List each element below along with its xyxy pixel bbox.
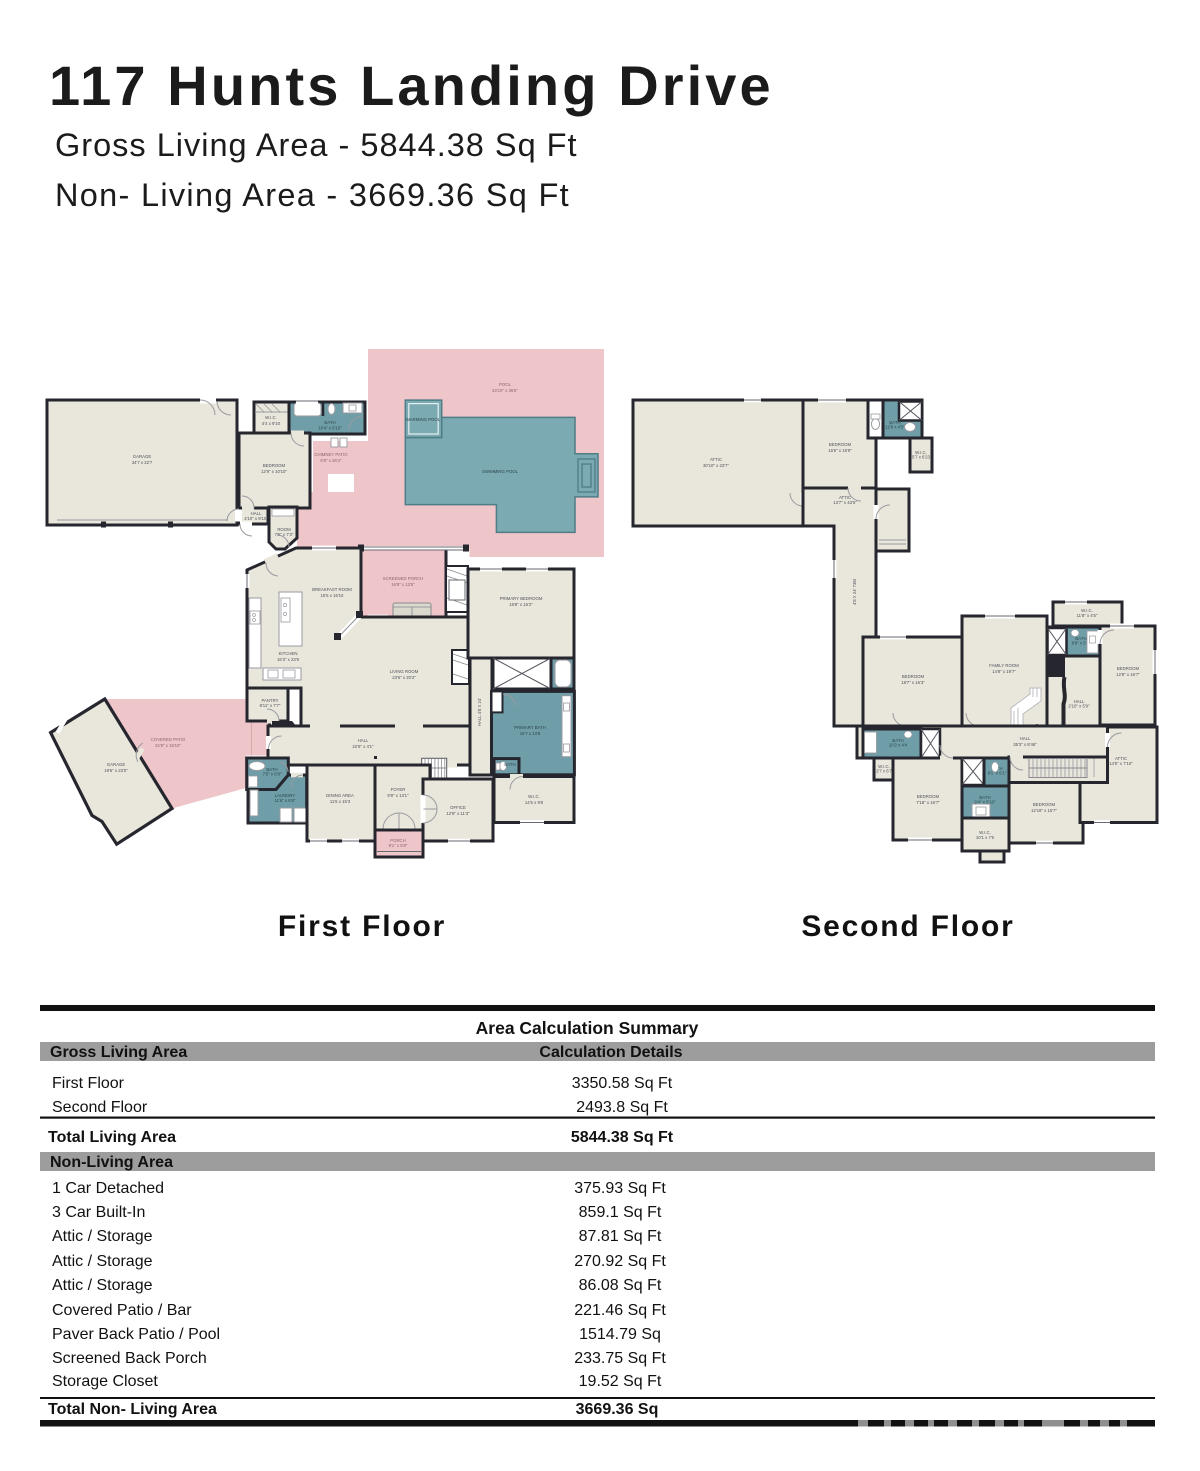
- svg-text:Area Calculation Summary: Area Calculation Summary: [476, 1018, 699, 1038]
- svg-text:270.92 Sq Ft: 270.92 Sq Ft: [574, 1253, 666, 1270]
- svg-text:Attic / Storage: Attic / Storage: [52, 1253, 153, 1270]
- svg-text:BEDROOM12'18" x 15'7": BEDROOM12'18" x 15'7": [1031, 802, 1057, 813]
- svg-text:GARAGE19'6" x 23'0": GARAGE19'6" x 23'0": [104, 762, 128, 773]
- svg-text:86.08 Sq Ft: 86.08 Sq Ft: [579, 1277, 662, 1294]
- svg-text:First Floor: First Floor: [52, 1075, 125, 1092]
- svg-text:FAMILY ROOM14'8" x 19'7": FAMILY ROOM14'8" x 19'7": [989, 663, 1019, 674]
- svg-text:Second Floor: Second Floor: [52, 1099, 148, 1116]
- svg-text:859.1 Sq Ft: 859.1 Sq Ft: [579, 1204, 662, 1221]
- svg-text:Screened Back Porch: Screened Back Porch: [52, 1350, 207, 1367]
- svg-text:WARMING POOL: WARMING POOL: [406, 417, 441, 422]
- svg-text:BEDROOM12'8" x 16'7": BEDROOM12'8" x 16'7": [1116, 666, 1140, 677]
- svg-text:GARAGE34'7 x 22'7: GARAGE34'7 x 22'7: [132, 454, 153, 465]
- svg-text:375.93 Sq Ft: 375.93 Sq Ft: [574, 1180, 666, 1197]
- svg-text:BEDROOM18'7" x 16'3": BEDROOM18'7" x 16'3": [901, 674, 925, 685]
- svg-text:87.81 Sq Ft: 87.81 Sq Ft: [579, 1228, 662, 1245]
- svg-text:2493.8 Sq Ft: 2493.8 Sq Ft: [576, 1099, 668, 1116]
- svg-text:Non-Living Area: Non-Living Area: [50, 1154, 173, 1171]
- svg-text:Attic / Storage: Attic / Storage: [52, 1277, 153, 1294]
- svg-text:BEDROOM12'9" x 10'10": BEDROOM12'9" x 10'10": [261, 463, 287, 474]
- svg-text:First Floor: First Floor: [278, 910, 446, 943]
- svg-text:Second Floor: Second Floor: [801, 910, 1014, 943]
- svg-text:Total Non- Living Area: Total Non- Living Area: [48, 1401, 217, 1418]
- svg-text:19.52 Sq Ft: 19.52 Sq Ft: [579, 1373, 662, 1390]
- svg-text:1514.79 Sq: 1514.79 Sq: [579, 1326, 661, 1343]
- svg-text:DINING AREA11'6 x 15'3: DINING AREA11'6 x 15'3: [326, 793, 354, 804]
- svg-text:Paver Back Patio / Pool: Paver Back Patio / Pool: [52, 1326, 220, 1343]
- svg-text:BEDROOM16'5" x 15'9": BEDROOM16'5" x 15'9": [828, 442, 852, 453]
- svg-text:221.46 Sq Ft: 221.46 Sq Ft: [574, 1302, 666, 1319]
- svg-text:117 Hunts Landing Drive: 117 Hunts Landing Drive: [49, 54, 774, 117]
- svg-text:5844.38 Sq Ft: 5844.38 Sq Ft: [571, 1129, 674, 1146]
- svg-text:BATH: BATH: [504, 762, 515, 767]
- svg-text:KITCHEN16'3" x 23'9: KITCHEN16'3" x 23'9: [277, 651, 300, 662]
- svg-text:3350.58 Sq Ft: 3350.58 Sq Ft: [572, 1075, 673, 1092]
- svg-text:Gross Living Area: Gross Living Area: [50, 1044, 187, 1061]
- svg-text:LAUNDRY11'6" x 6'8": LAUNDRY11'6" x 6'8": [275, 793, 296, 803]
- svg-text:BEDROOM7'18" x 16'7": BEDROOM7'18" x 16'7": [916, 794, 940, 805]
- svg-text:COVERED PATIO24'8" x 16'10": COVERED PATIO24'8" x 16'10": [151, 737, 186, 748]
- svg-text:PORCH8'1" x 5'8": PORCH8'1" x 5'8": [389, 838, 408, 848]
- svg-text:Gross Living Area - 5844.38 Sq: Gross Living Area - 5844.38 Sq Ft: [55, 127, 578, 163]
- svg-text:3669.36 Sq: 3669.36 Sq: [576, 1401, 659, 1418]
- svg-text:Attic / Storage: Attic / Storage: [52, 1228, 153, 1245]
- svg-text:Storage Closet: Storage Closet: [52, 1373, 158, 1390]
- svg-text:PANTRY8'11" x 7'7": PANTRY8'11" x 7'7": [260, 698, 281, 708]
- svg-text:233.75 Sq Ft: 233.75 Sq Ft: [574, 1350, 666, 1367]
- svg-text:Non- Living Area - 3669.36 Sq: Non- Living Area - 3669.36 Sq Ft: [55, 177, 570, 213]
- svg-text:1 Car Detached: 1 Car Detached: [52, 1180, 164, 1197]
- svg-text:4'8 X 24' 73M: 4'8 X 24' 73M: [852, 579, 857, 605]
- svg-text:Calculation Details: Calculation Details: [539, 1044, 682, 1061]
- svg-text:SWIMMING POOL: SWIMMING POOL: [482, 469, 519, 474]
- svg-text:LIVING ROOM23'6" x 20'2": LIVING ROOM23'6" x 20'2": [390, 669, 419, 680]
- svg-text:Total Living Area: Total Living Area: [48, 1129, 176, 1146]
- svg-text:3 Car Built-In: 3 Car Built-In: [52, 1204, 145, 1221]
- svg-text:HALL 4'8 X 24': HALL 4'8 X 24': [477, 698, 482, 726]
- svg-text:Covered Patio / Bar: Covered Patio / Bar: [52, 1302, 192, 1319]
